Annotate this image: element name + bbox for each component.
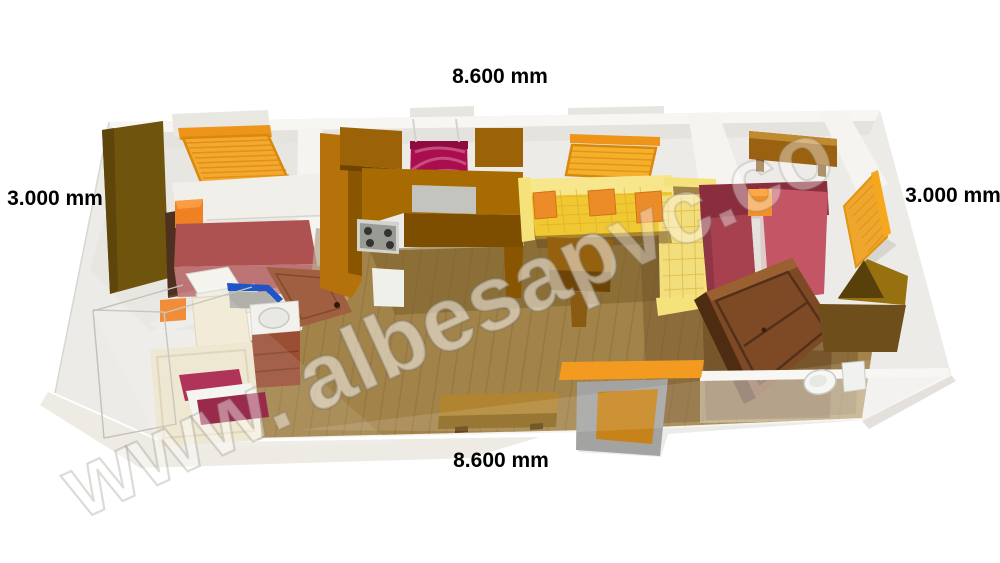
- svg-text:8.600 mm: 8.600 mm: [453, 449, 549, 472]
- svg-text:8.600 mm: 8.600 mm: [452, 65, 548, 88]
- svg-text:3.000 mm: 3.000 mm: [7, 187, 103, 210]
- svg-text:3.000 mm: 3.000 mm: [905, 184, 1000, 207]
